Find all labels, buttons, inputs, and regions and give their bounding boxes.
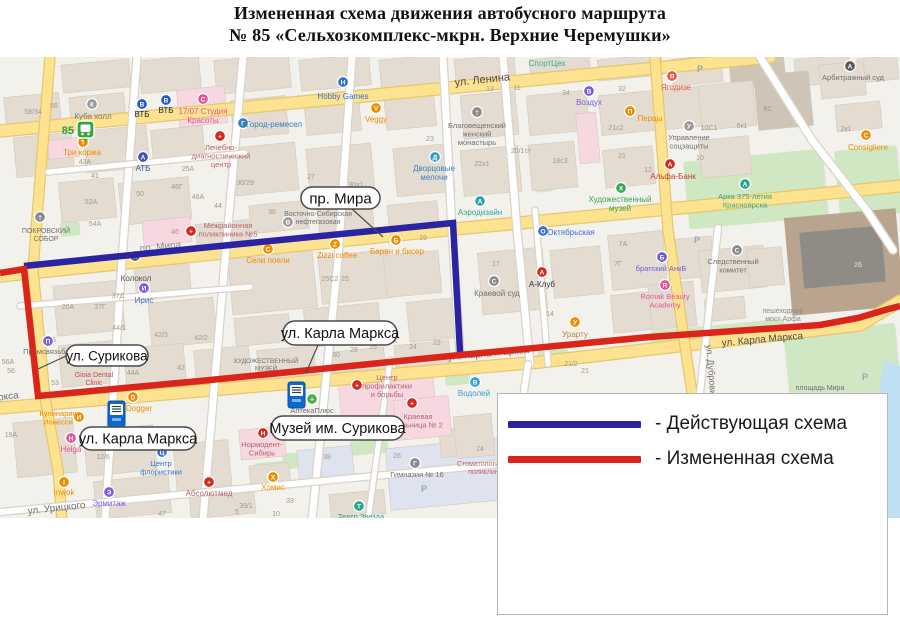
poi-icon-glyph: Х: [619, 185, 624, 192]
parking-mark: Р: [421, 484, 427, 494]
poi-label: Zizzi coffee: [317, 251, 358, 260]
poi-icon-glyph: +: [218, 133, 222, 140]
legend-label-current-scheme: - Действующая схема: [655, 413, 847, 435]
poi-icon-glyph: В: [164, 97, 169, 104]
building-block: [406, 298, 458, 342]
building-number: 19: [419, 235, 427, 242]
callout-label: ул. Карла Маркса: [79, 432, 198, 448]
building-number: 53: [51, 380, 59, 387]
poi-label: А-Клуб: [529, 280, 555, 289]
building-number: 38: [323, 454, 331, 461]
building-number: 17: [492, 261, 500, 268]
building-number: 36: [268, 209, 276, 216]
building-number: 39/1: [239, 503, 253, 510]
poi-icon-glyph: И: [77, 414, 82, 421]
poi-icon-glyph: Э: [107, 489, 112, 496]
building-number: 52А: [85, 199, 98, 206]
poi-label: Сели поели: [246, 256, 289, 265]
poi-icon-glyph: Г: [241, 120, 245, 127]
building-number: 24: [409, 344, 417, 351]
poi-icon-glyph: А: [848, 63, 853, 70]
building-number: 47: [158, 511, 166, 518]
building-number: 34: [562, 90, 570, 97]
building-number: 13: [486, 86, 494, 93]
poi-icon-glyph: В: [140, 101, 145, 108]
poi-icon-glyph: С: [492, 278, 497, 285]
poi-label: Октябрьская: [547, 228, 594, 237]
poi-icon-glyph: А: [141, 154, 146, 161]
bus-route-number: 85: [62, 125, 74, 137]
poi-icon-glyph: А: [668, 161, 673, 168]
building-block: [383, 250, 442, 297]
bus-badge-bus-body: [81, 125, 91, 133]
building-number: 20А: [62, 304, 75, 311]
poi-icon-glyph: А: [478, 198, 483, 205]
building-number: 10: [272, 511, 280, 518]
poi-label: Арбитражный суд: [822, 73, 885, 82]
building-block: [746, 246, 784, 287]
building-number: 12/6: [96, 454, 110, 461]
poi-label: Абсолютмед: [186, 489, 233, 498]
building-number: 50: [136, 191, 144, 198]
building-number: 42/2: [194, 335, 208, 342]
poi-icon-glyph: +: [310, 396, 314, 403]
callout-label: пр. Мира: [309, 190, 372, 207]
building-number: 41: [91, 173, 99, 180]
building-number: 24: [476, 446, 484, 453]
poi-label: Куба холл: [74, 112, 112, 121]
poi-icon-glyph: В: [587, 88, 592, 95]
building-number: 7А: [619, 241, 628, 248]
poi-label: Хомис: [261, 483, 285, 492]
poi-icon-glyph: И: [142, 285, 147, 292]
building-number: 54А: [89, 221, 102, 228]
parking-mark: Р: [694, 235, 700, 245]
poi-icon-glyph: +: [207, 479, 211, 486]
legend-row-changed: - Измененная схема: [508, 447, 887, 471]
poi-icon-glyph: К: [90, 101, 94, 108]
building-number: 20/1ст: [511, 148, 532, 155]
building-number: 56А: [2, 359, 15, 366]
poi-label: ВТБ: [135, 110, 150, 119]
building-number: 25: [341, 276, 349, 283]
poi-icon-glyph: А: [540, 269, 545, 276]
building-number: 10С1: [701, 125, 718, 132]
building-number: 30/29: [236, 180, 254, 187]
poi-label: СпортЦех: [529, 59, 566, 68]
poi-label: АТБ: [136, 164, 151, 173]
poi-label: Колокол: [121, 274, 152, 283]
building-number: 27: [307, 174, 315, 181]
poi-label: Управлениесоцзащиты: [668, 133, 710, 151]
building-number: 44/1: [112, 325, 126, 332]
poi-label: Hobby Games: [317, 92, 368, 101]
poi-label: Consigliere: [848, 143, 889, 152]
bus-badge-wheel: [81, 133, 84, 136]
poi-label: Баран и бисер: [370, 247, 424, 256]
poi-icon-glyph: C: [864, 132, 869, 139]
poi-label: Ягодизе: [661, 83, 692, 92]
poi-label: Эрмитаж: [92, 499, 126, 508]
bus-stop-icon-strip: [112, 418, 121, 421]
building-number: 30: [332, 352, 340, 359]
poi-icon-glyph: D: [131, 394, 136, 401]
poi-label: Dogger: [126, 404, 153, 413]
parking-mark: Р: [697, 64, 703, 74]
poi-label: Inwok: [54, 488, 76, 497]
poi-icon-glyph: †: [38, 214, 42, 221]
building-number: 25А: [182, 166, 195, 173]
building-number: 22х1: [474, 161, 489, 168]
callout-label: ул. Сурикова: [66, 348, 148, 363]
building-number: 46: [171, 229, 179, 236]
poi-label: площадь Мира: [796, 385, 845, 392]
building-number: 26: [393, 453, 401, 460]
building-number: 33: [286, 498, 294, 505]
poi-icon-glyph: Z: [333, 241, 337, 248]
building-number: 56: [50, 103, 58, 110]
poi-icon-glyph: Т: [81, 139, 85, 146]
legend-line-changed-scheme: [508, 456, 641, 463]
building-block: [698, 80, 757, 130]
poi-icon-glyph: +: [189, 228, 193, 235]
title-line-2: № 85 «Сельхозкомплекс-мкрн. Верхние Чере…: [0, 24, 900, 46]
legend-label-changed-scheme: - Измененная схема: [655, 448, 834, 470]
poi-icon-glyph: Б: [394, 237, 399, 244]
poi-icon-glyph: +: [410, 400, 414, 407]
poi-label: Урарту: [562, 330, 588, 339]
poi-icon-glyph: Н: [261, 430, 266, 437]
callout-label: ул. Карла Маркса: [281, 326, 400, 342]
building-number: 56: [7, 368, 15, 375]
building-number: 37Д: [112, 293, 125, 300]
building-number: 21: [581, 368, 589, 375]
poi-icon-glyph: В: [473, 379, 478, 386]
poi-icon-glyph: Д: [433, 154, 438, 161]
building-number: 26: [854, 262, 862, 269]
building-number: 6С: [764, 106, 773, 113]
poi-label: Воздух: [576, 98, 602, 107]
poi-label: Перцы: [638, 114, 663, 123]
poi-label: Аэродизайн: [458, 208, 502, 217]
poi-icon-glyph: С: [266, 246, 271, 253]
building-block: [528, 141, 578, 191]
poi-icon-glyph: О: [540, 228, 545, 235]
poi-label: Три коржа: [63, 148, 101, 157]
bus-stop-icon-strip: [292, 399, 301, 402]
poi-icon-glyph: V: [374, 105, 379, 112]
poi-label: КулинарияИонесси: [39, 409, 76, 427]
building-number: 42: [177, 365, 185, 372]
building-number: 14: [546, 311, 554, 318]
building-number: 32: [618, 86, 626, 93]
legend-line-current-scheme: [508, 421, 641, 428]
poi-icon-glyph: Г: [413, 460, 417, 467]
poi-label: ВТБ: [159, 106, 174, 115]
building-block: [453, 413, 495, 458]
poi-icon-glyph: С: [201, 96, 206, 103]
building-number: 37Г: [94, 304, 106, 311]
poi-label: Veggy: [365, 115, 387, 124]
poi-label: Арка 375-летияКрасноярска: [718, 192, 772, 210]
building-number: 42/3: [154, 332, 168, 339]
photo-building-roof: [799, 226, 886, 289]
building-block: [214, 53, 292, 94]
poi-label: Краевой суд: [474, 289, 520, 298]
building-number: 46А: [192, 194, 205, 201]
building-number: 18с3: [552, 158, 567, 165]
building-number: 11: [513, 85, 520, 92]
building-block: [139, 55, 202, 94]
poi-label: Ирис: [135, 296, 154, 305]
callout-label: Музей им. Сурикова: [269, 421, 406, 437]
building-number: 44: [214, 203, 222, 210]
poi-icon-glyph: В: [286, 219, 291, 226]
poi-label: Гимназия № 16: [390, 470, 443, 479]
bus-badge-wheel: [87, 133, 90, 136]
poi-icon-glyph: H: [341, 79, 346, 86]
legend-row-current: - Действующая схема: [508, 412, 887, 436]
poi-icon-glyph: П: [628, 108, 633, 115]
poi-icon-glyph: Т: [357, 503, 361, 510]
poi-icon-glyph: H: [69, 435, 74, 442]
poi-icon-glyph: Б: [660, 254, 665, 261]
building-number: 10: [696, 155, 704, 162]
building-block: [299, 54, 372, 92]
poi-label: Межрайоннаяполиклиника №5: [199, 221, 258, 239]
poi-icon-glyph: Я: [670, 73, 675, 80]
building-number: 46Г: [171, 184, 183, 191]
poi-label: Водолей: [458, 389, 490, 398]
page-title: Измененная схема движения автобусного ма…: [0, 2, 900, 46]
poi-icon-glyph: I: [63, 479, 65, 486]
building-number: 2к1: [841, 126, 852, 133]
building-number: 5: [235, 509, 239, 516]
poi-label: Театр Звезда: [338, 512, 385, 521]
poi-icon-glyph: +: [355, 382, 359, 389]
poi-icon-glyph: †: [475, 109, 479, 116]
poi-label: братский АнкБ: [636, 264, 687, 273]
building-number: 21: [618, 153, 626, 160]
building-number: 44А: [127, 370, 140, 377]
building-number: 25С2: [322, 276, 339, 283]
poi-label: Альфа-Банк: [650, 172, 696, 181]
poi-icon-glyph: R: [663, 282, 668, 289]
building-number: 22: [433, 340, 441, 347]
poi-icon-glyph: С: [735, 247, 740, 254]
parking-mark: Р: [862, 372, 868, 382]
poi-icon-glyph: Х: [271, 474, 276, 481]
poi-icon-glyph: А: [743, 181, 748, 188]
title-line-1: Измененная схема движения автобусного ма…: [0, 2, 900, 24]
legend-panel: - Действующая схема - Измененная схема: [497, 393, 888, 615]
building-number: 58/34: [24, 109, 42, 116]
poi-icon-glyph: П: [46, 338, 51, 345]
building-number: 21с2: [608, 125, 623, 132]
poi-label: Город-ремесел: [246, 120, 302, 129]
building-number: 6к1: [737, 123, 748, 130]
building-number: 19А: [5, 432, 18, 439]
building-number: 7Г: [614, 261, 622, 268]
building-number: 21/2: [564, 361, 578, 368]
building-block: [550, 246, 604, 299]
building-number: 43А: [79, 159, 92, 166]
building-number: 23: [426, 136, 434, 143]
building-number: 28: [350, 347, 358, 354]
